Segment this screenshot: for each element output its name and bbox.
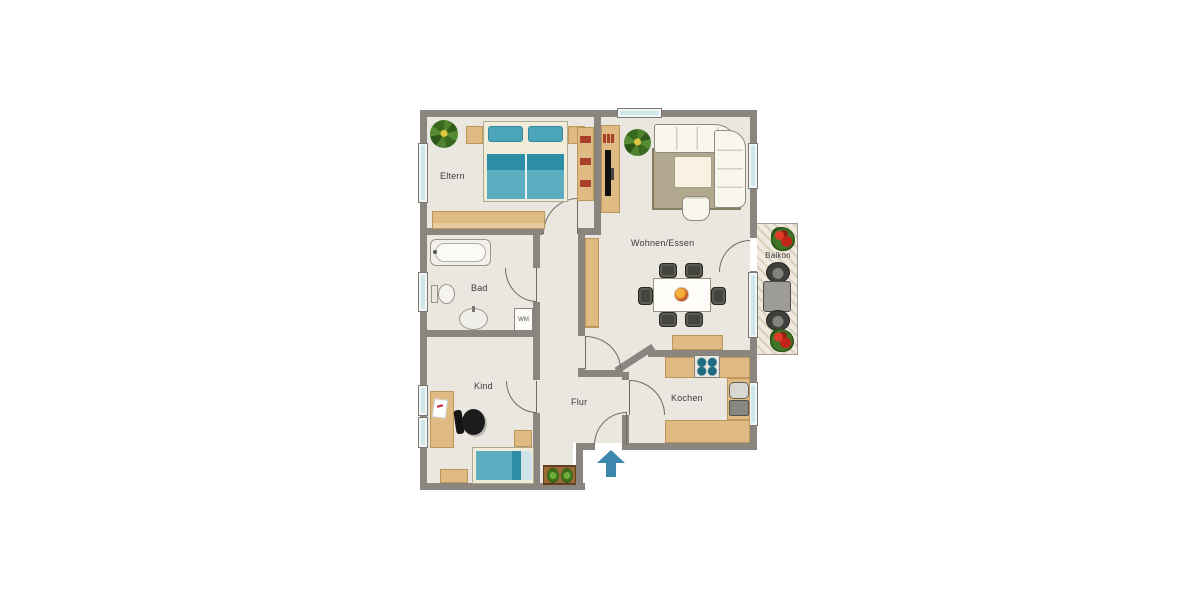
window-kind-upper bbox=[418, 385, 428, 416]
room-label-kind: Kind bbox=[474, 381, 493, 391]
wall-bottom-right-a bbox=[576, 443, 595, 450]
pillow bbox=[528, 126, 563, 142]
plant-icon bbox=[624, 129, 651, 156]
room-label-wohnen-essen: Wohnen/Essen bbox=[631, 238, 694, 248]
kitchen-sink bbox=[729, 382, 749, 416]
toilet-tank bbox=[431, 285, 438, 303]
books bbox=[580, 180, 591, 187]
wall-bottom-right-b bbox=[627, 443, 757, 450]
plant-icon bbox=[561, 468, 573, 483]
bookshelf bbox=[577, 127, 594, 201]
office-chair bbox=[462, 409, 485, 435]
wall-kochen-west-a bbox=[622, 372, 629, 380]
wall-entry-connector bbox=[576, 443, 583, 490]
bed-blanket bbox=[476, 451, 512, 480]
flower-icon bbox=[771, 227, 795, 251]
plant-icon bbox=[547, 468, 559, 483]
balcony-chair bbox=[766, 262, 790, 283]
window-wohnen-right bbox=[748, 143, 758, 189]
room-label-kochen: Kochen bbox=[671, 393, 703, 403]
books bbox=[603, 134, 615, 143]
dresser bbox=[440, 469, 468, 483]
dining-chair bbox=[685, 312, 703, 327]
books bbox=[580, 136, 591, 143]
room-label-flur: Flur bbox=[571, 397, 587, 407]
books bbox=[580, 158, 591, 165]
room-label-eltern: Eltern bbox=[440, 171, 465, 181]
dining-chair bbox=[711, 287, 726, 305]
window-wohnen-top bbox=[617, 108, 662, 118]
bathtub-tap-icon bbox=[433, 250, 437, 254]
wall-top bbox=[420, 110, 757, 117]
single-bed bbox=[472, 447, 534, 484]
entrance-arrow-icon bbox=[597, 450, 625, 477]
washing-machine-label: WM bbox=[518, 317, 529, 323]
window-balkon-door bbox=[748, 272, 758, 338]
kitchen-counter-bottom bbox=[665, 420, 750, 443]
wall-kind-east-a bbox=[533, 337, 540, 380]
coffee-table bbox=[674, 156, 712, 188]
stove bbox=[694, 355, 720, 378]
kitchen-sink-bowl bbox=[729, 382, 749, 399]
washing-machine: WM bbox=[514, 308, 533, 331]
toilet bbox=[438, 284, 455, 304]
dining-chair bbox=[685, 263, 703, 278]
hall-cabinet bbox=[585, 238, 599, 328]
flower-icon bbox=[770, 329, 794, 352]
dining-chair bbox=[638, 287, 653, 305]
armchair bbox=[682, 196, 710, 221]
wardrobe bbox=[432, 211, 545, 229]
bathtub-basin bbox=[435, 243, 486, 262]
wall-eltern-bottom bbox=[427, 228, 543, 235]
balcony-table bbox=[763, 281, 791, 312]
wall-bad-kind bbox=[427, 330, 540, 337]
nightstand bbox=[466, 126, 483, 144]
nightstand bbox=[514, 430, 532, 447]
plant-icon bbox=[430, 120, 458, 148]
room-label-bad: Bad bbox=[471, 283, 488, 293]
balcony-chair bbox=[766, 310, 790, 331]
window-bad bbox=[418, 272, 428, 312]
desk-paper bbox=[432, 398, 448, 419]
dining-chair bbox=[659, 263, 677, 278]
washbasin-tap-icon bbox=[472, 306, 475, 312]
kitchen-sideboard bbox=[672, 335, 723, 350]
bathtub bbox=[430, 239, 491, 266]
bed-band bbox=[512, 451, 521, 480]
tv-stand bbox=[611, 168, 614, 180]
wall-flur-wohnen-upper bbox=[578, 235, 585, 336]
sofa-cushions bbox=[717, 133, 743, 205]
fruit-bowl-icon bbox=[674, 287, 689, 302]
room-label-balkon: Balkon bbox=[757, 251, 799, 260]
sofa-right-section bbox=[714, 130, 746, 208]
wall-bad-east-a bbox=[533, 235, 540, 268]
pillow bbox=[521, 451, 532, 480]
pillow bbox=[488, 126, 523, 142]
bed-split-line bbox=[525, 154, 527, 199]
window-kind-lower bbox=[418, 417, 428, 448]
wall-kind-east-b bbox=[533, 413, 540, 490]
plant-rack bbox=[543, 465, 576, 485]
kitchen-sink-drainer bbox=[729, 400, 749, 416]
dining-chair bbox=[659, 312, 677, 327]
wall-eltern-wohnen bbox=[594, 117, 601, 235]
window-eltern bbox=[418, 143, 428, 203]
floor-plan: WM Eltern Bad Kind Flur Wohnen/Essen Koc… bbox=[0, 0, 1200, 600]
double-bed bbox=[483, 121, 568, 202]
